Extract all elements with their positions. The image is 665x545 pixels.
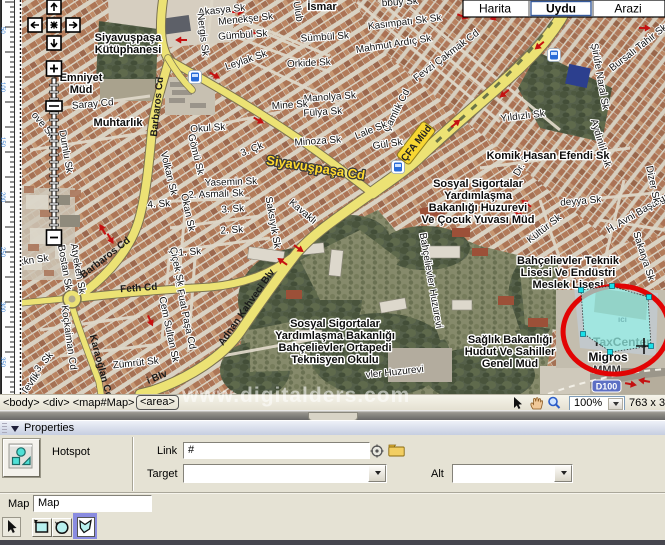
svg-text:Yardımlaşma Bakanlığı: Yardımlaşma Bakanlığı xyxy=(275,330,395,342)
svg-text:Kütüphanesi: Kütüphanesi xyxy=(95,44,162,56)
svg-text:Sağlık Bakanlığı: Sağlık Bakanlığı xyxy=(468,334,552,346)
svg-text:Teknisyen Okulu: Teknisyen Okulu xyxy=(291,354,378,366)
svg-text:Siyavuşpaşa: Siyavuşpaşa xyxy=(95,32,163,44)
svg-text:Lisesi Ve Endüstri: Lisesi Ve Endüstri xyxy=(521,267,616,279)
svg-text:100: 100 xyxy=(1,82,5,93)
svg-text:Muhtarlık: Muhtarlık xyxy=(94,117,144,129)
svg-text:150: 150 xyxy=(1,137,5,148)
svg-text:Bahçelievler Ortapedi: Bahçelievler Ortapedi xyxy=(278,342,391,354)
svg-text:Komik Hasan Efendi Sk: Komik Hasan Efendi Sk xyxy=(487,150,611,162)
svg-text:250: 250 xyxy=(1,247,5,258)
svg-text:İsmar: İsmar xyxy=(307,0,337,13)
svg-text:Yardımlaşma: Yardımlaşma xyxy=(444,190,513,202)
svg-text:Orkide Sk: Orkide Sk xyxy=(287,57,332,70)
svg-text:Hudut Ve Sahiller: Hudut Ve Sahiller xyxy=(465,346,556,358)
svg-text:Bahçelievler Teknik: Bahçelievler Teknik xyxy=(517,255,620,267)
svg-text:Arazi: Arazi xyxy=(614,2,641,16)
svg-text:Sosyal Sigortalar: Sosyal Sigortalar xyxy=(290,318,381,330)
svg-text:Yasemin Sk: Yasemin Sk xyxy=(204,176,258,189)
svg-text:200: 200 xyxy=(1,192,5,203)
svg-text:300: 300 xyxy=(1,302,5,313)
svg-text:4. Sk: 4. Sk xyxy=(147,198,171,211)
svg-text:Emniyet: Emniyet xyxy=(60,72,103,84)
svg-text:2. Sk: 2. Sk xyxy=(220,224,244,237)
svg-text:350: 350 xyxy=(1,357,5,368)
svg-text:Sosyal Sigortalar: Sosyal Sigortalar xyxy=(433,178,524,190)
svg-text:Ve Çocuk Yuvası Müd: Ve Çocuk Yuvası Müd xyxy=(422,214,535,226)
svg-text:1. Sk: 1. Sk xyxy=(178,246,202,259)
svg-text:2. Asmalı Sk: 2. Asmalı Sk xyxy=(188,188,245,201)
svg-text:D100: D100 xyxy=(596,382,618,392)
svg-text:Bakanlığı Huzurevi: Bakanlığı Huzurevi xyxy=(429,202,527,214)
svg-text:3. Sk: 3. Sk xyxy=(221,203,245,216)
svg-text:Harita: Harita xyxy=(479,2,511,16)
svg-text:50: 50 xyxy=(1,27,5,34)
svg-text:Müd: Müd xyxy=(70,84,93,96)
svg-text:Uydu: Uydu xyxy=(546,2,576,16)
svg-text:Genel Müd: Genel Müd xyxy=(482,358,538,370)
